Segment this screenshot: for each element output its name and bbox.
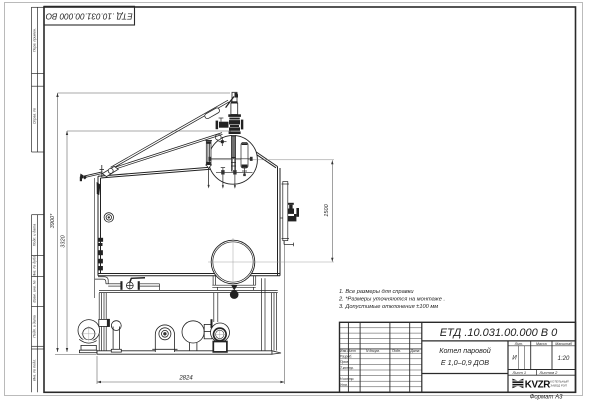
svg-text:Разраб.: Разраб. <box>340 355 352 359</box>
svg-text:И: И <box>512 355 517 362</box>
svg-text:1:20: 1:20 <box>558 356 570 362</box>
svg-text:3320: 3320 <box>61 234 67 247</box>
svg-text:Подп. и дата: Подп. и дата <box>33 224 37 247</box>
svg-text:Листов 2: Листов 2 <box>539 370 559 375</box>
svg-text:Котел паровой: Котел паровой <box>439 346 491 355</box>
svg-text:Взам. инв. №: Взам. инв. № <box>33 280 37 302</box>
svg-text:Утв.: Утв. <box>340 383 348 387</box>
svg-text:Масса: Масса <box>536 342 547 346</box>
svg-text:Е 1,0–0,9 ДОВ: Е 1,0–0,9 ДОВ <box>441 358 489 367</box>
svg-text:Изм.Лист: Изм.Лист <box>340 349 356 353</box>
svg-text:3. Допустимые отклонения ±10: 3. Допустимые отклонения ±100 мм <box>339 304 438 310</box>
svg-text:Подп.: Подп. <box>392 349 401 353</box>
svg-text:Перв. примен.: Перв. примен. <box>33 28 37 52</box>
svg-text:N докум.: N докум. <box>366 349 380 353</box>
svg-text:Инв. № дубл.: Инв. № дубл. <box>33 255 37 277</box>
svg-text:KVZR: KVZR <box>525 379 550 390</box>
svg-text:Лит.: Лит. <box>514 342 523 346</box>
svg-text:ЗАВОД РЭП: ЗАВОД РЭП <box>550 384 567 388</box>
svg-text:Т.контр.: Т.контр. <box>340 366 354 370</box>
svg-text:Инв. № подл.: Инв. № подл. <box>33 359 37 381</box>
svg-text:Справ. №: Справ. № <box>33 108 37 124</box>
svg-text:ЕТД .10.031.00.000 ВО: ЕТД .10.031.00.000 ВО <box>45 12 133 21</box>
svg-text:Н.контр.: Н.контр. <box>340 377 354 381</box>
svg-text:Масштаб: Масштаб <box>555 342 573 346</box>
svg-text:2824: 2824 <box>178 376 193 382</box>
svg-text:2. *Размеры уточняются на мон: 2. *Размеры уточняются на монтаже . <box>338 297 445 303</box>
svg-text:Дата: Дата <box>410 349 420 353</box>
svg-text:1. Все размеры для справки: 1. Все размеры для справки <box>339 289 414 295</box>
svg-text:3900*: 3900* <box>50 213 56 228</box>
svg-text:Подп. и дата: Подп. и дата <box>33 315 37 338</box>
svg-text:Формат А3: Формат А3 <box>530 394 563 400</box>
svg-text:Лист 1: Лист 1 <box>512 370 527 375</box>
svg-text:1500: 1500 <box>324 203 330 216</box>
svg-text:Пров.: Пров. <box>340 360 349 364</box>
svg-text:ЕТД .10.031.00.000 В 0: ЕТД .10.031.00.000 В 0 <box>440 327 558 339</box>
